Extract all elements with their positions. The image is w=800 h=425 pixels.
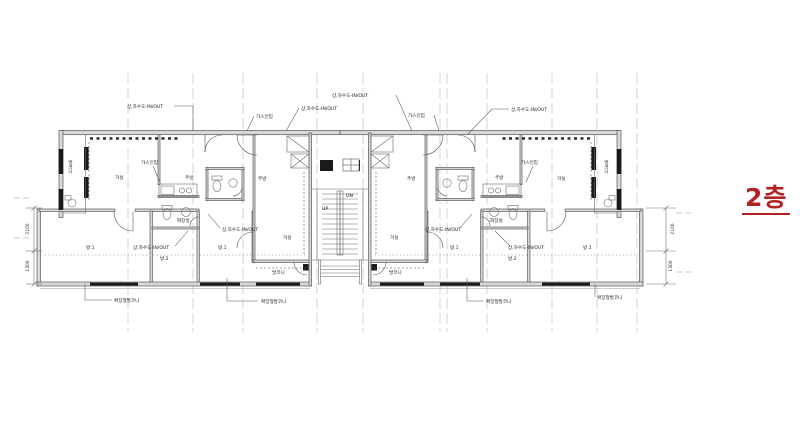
room-label-balcony-2: 발코니 (272, 269, 285, 276)
dimension-2100-right: 2100 (670, 223, 676, 234)
annotation-gas-top-1: 가스인입 (256, 113, 273, 120)
room-label-bath-1: 화장실 (177, 217, 190, 224)
room-label-living-4: 거실 (557, 175, 565, 182)
room-label-kitchen-4: 주방 (495, 174, 504, 181)
floor-badge: 2층 (742, 184, 790, 215)
room-label-living-2: 거실 (283, 234, 291, 241)
annotation-extbalcony-2: 확장형발코니 (261, 298, 286, 305)
room-label-balcony-3: 발코니 (389, 269, 402, 276)
stair-up-label: UP (322, 206, 328, 212)
room-label-living-1: 거실 (115, 174, 123, 181)
meter-box (343, 159, 359, 171)
floor-plan-drawing: 상,하수도-IN/OUT 상,하수도-IN/OUT 상,하수도-IN/OUT 상… (0, 0, 800, 425)
dimension-2100-left: 2100 (25, 223, 31, 234)
annotation-water-unit1: 상,하수도-IN/OUT (133, 244, 169, 251)
annotation-gas-unit1: 가스인입 (141, 159, 158, 166)
room-label-bath-2: 화장실 (490, 217, 503, 224)
door-arcs (114, 135, 307, 275)
room-label-room1-c: 방.1 (450, 244, 459, 251)
room-label-room1-b: 방.1 (218, 244, 227, 251)
annotation-gas-top-2: 가스인입 (408, 112, 425, 119)
grid-lines (128, 73, 637, 332)
dimension-lines (26, 206, 676, 287)
room-label-room1-d: 방.1 (583, 244, 592, 251)
room-label-living-3: 거실 (390, 234, 398, 241)
room-label-balcony-left: 발코니 (68, 159, 73, 175)
room-label-kitchen-3: 주방 (407, 175, 416, 182)
annotation-water-unit4: 상,하수도-IN/OUT (508, 244, 544, 251)
annotation-extbalcony-4: 확장형발코니 (597, 294, 622, 301)
room-label-room2-a: 방.2 (160, 255, 169, 262)
plan-right-half-mirror (340, 131, 643, 289)
room-label-kitchen-1: 주방 (185, 174, 194, 181)
room-label-room2-b: 방.2 (508, 255, 517, 262)
room-label-balcony-right: 발코니 (604, 159, 609, 175)
dimension-1300-right: 1300 (668, 260, 674, 271)
annotation-water-top-1: 상,하수도-IN/OUT (127, 103, 163, 110)
annotation-extbalcony-1: 확장형발코니 (114, 297, 139, 304)
stair-down-label: DN (346, 193, 353, 199)
annotation-gas-unit4: 가스인입 (521, 159, 538, 166)
plan-left-half (37, 131, 340, 289)
floor-plan-page: 상,하수도-IN/OUT 상,하수도-IN/OUT 상,하수도-IN/OUT 상… (0, 0, 800, 425)
room-label-room1-a: 방.1 (86, 244, 95, 251)
annotation-water-top-2: 상,하수도-IN/OUT (332, 92, 368, 99)
room-label-kitchen-2: 주방 (258, 175, 267, 182)
annotation-water-top-4: 상,하수도-IN/OUT (511, 106, 547, 113)
annotation-extbalcony-3: 확장형발코니 (486, 298, 511, 305)
annotation-water-unit3: 상,하수도-IN/OUT (425, 226, 461, 233)
dimension-1300-left: 1300 (25, 260, 31, 271)
annotation-water-top-3: 상,하수도-IN/OUT (301, 105, 337, 112)
annotation-water-unit2: 상,하수도-IN/OUT (222, 226, 258, 233)
